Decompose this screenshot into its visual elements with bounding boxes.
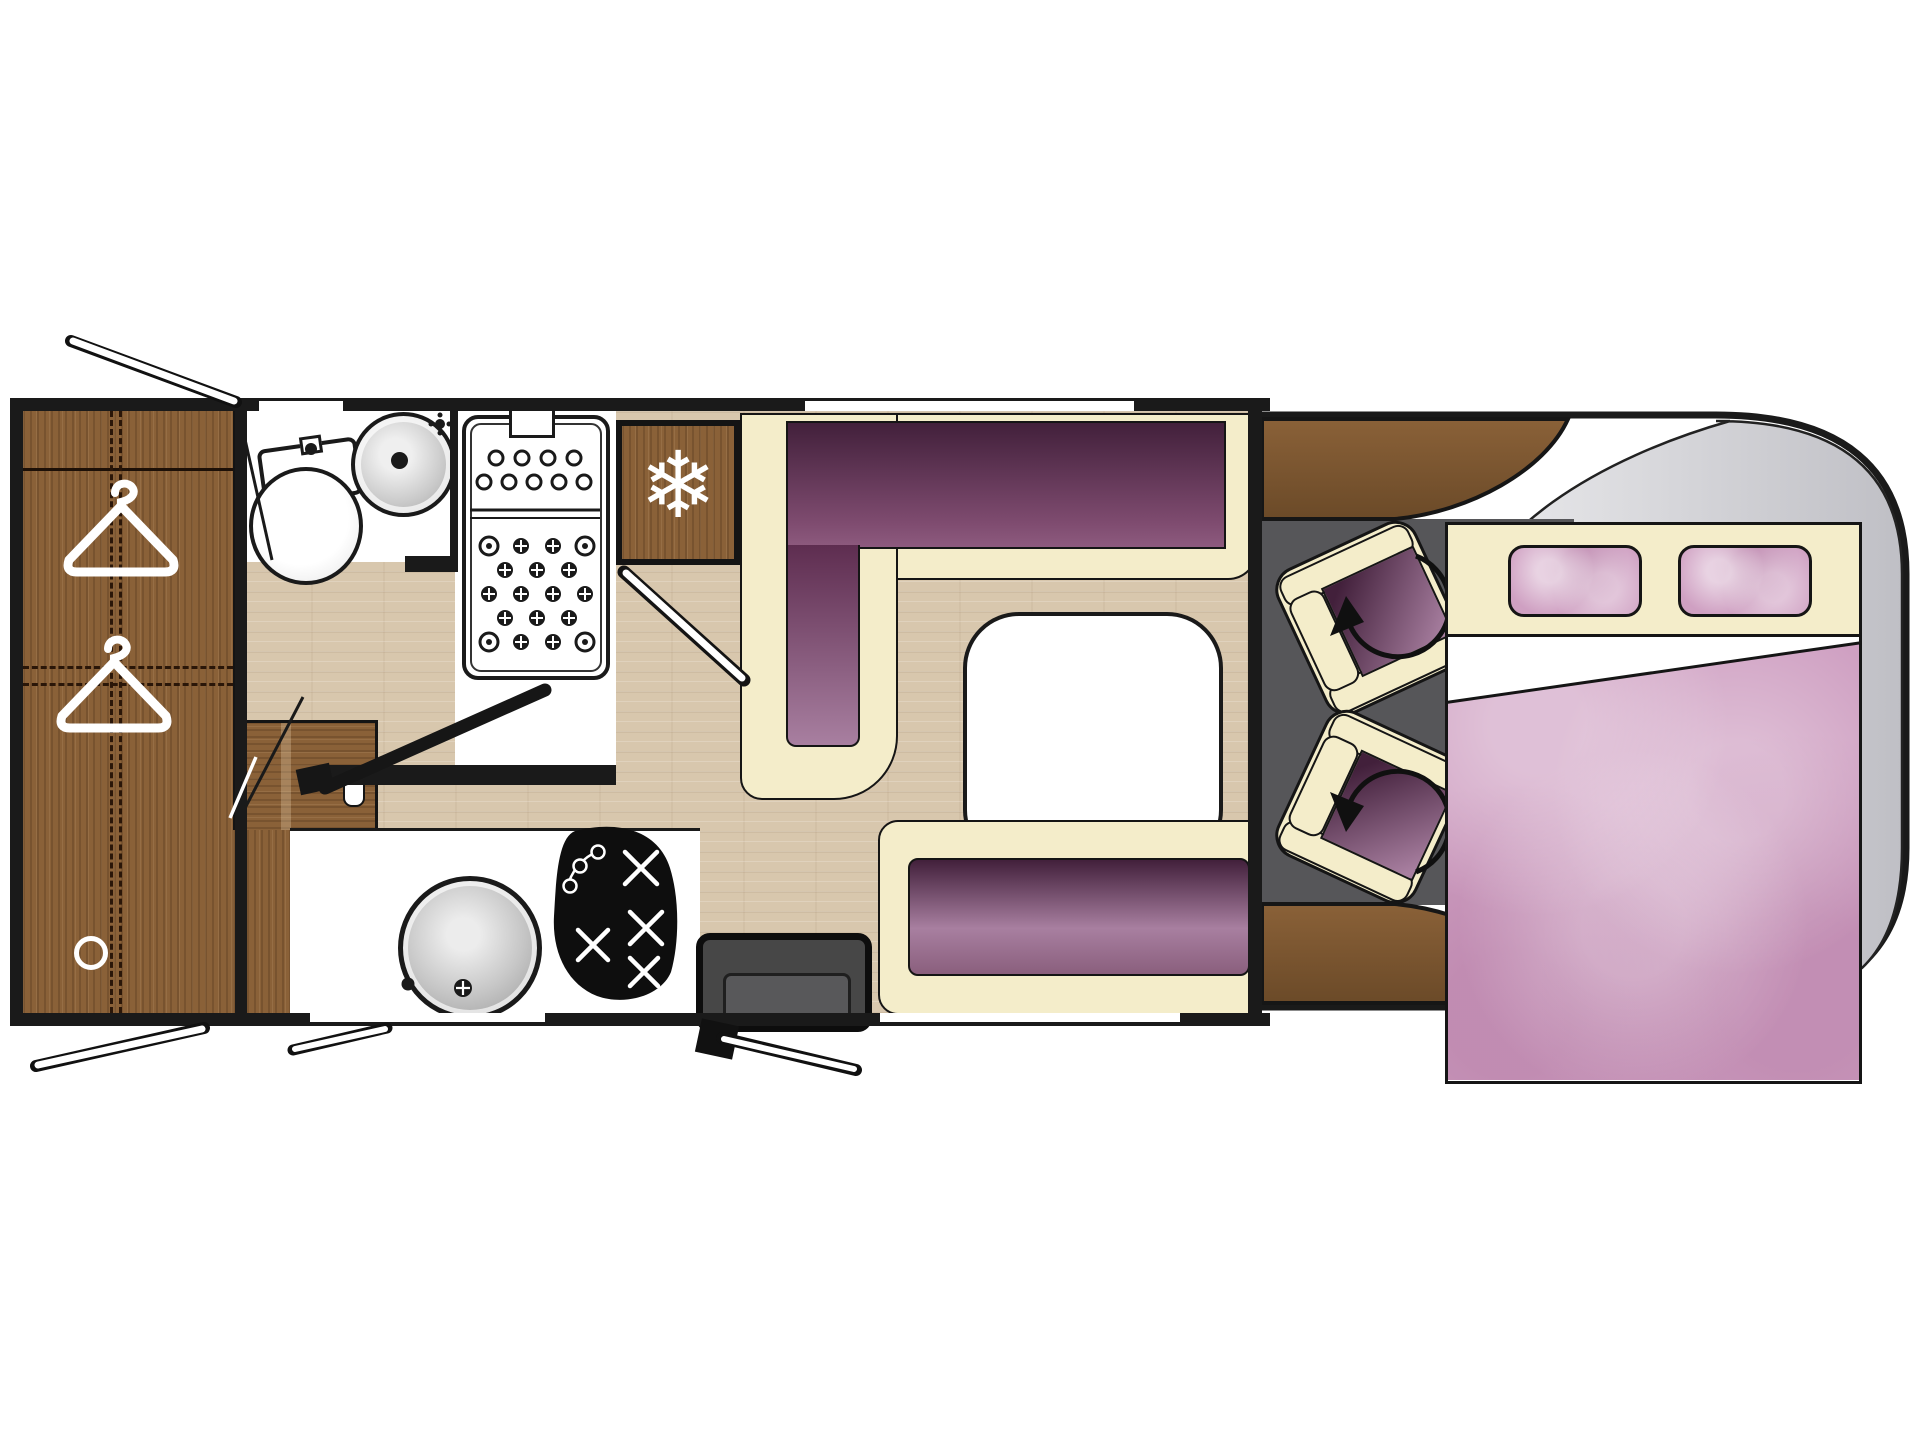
- bed-pillow: [1508, 545, 1642, 617]
- window-stays: [36, 341, 856, 1070]
- fridge-door-open: [626, 573, 742, 678]
- gas-hob: [554, 827, 677, 1000]
- shower-drain-holes: [470, 451, 600, 518]
- drop-down-bed: [1445, 522, 1862, 1084]
- motorhome-floorplan: ❄: [0, 0, 1920, 1440]
- shower-mat-dots: [480, 537, 594, 651]
- bed-duvet: [1448, 637, 1859, 1080]
- bed-pillow: [1678, 545, 1812, 617]
- faucet-icon: [305, 413, 472, 998]
- bathroom-door-open: [325, 690, 545, 788]
